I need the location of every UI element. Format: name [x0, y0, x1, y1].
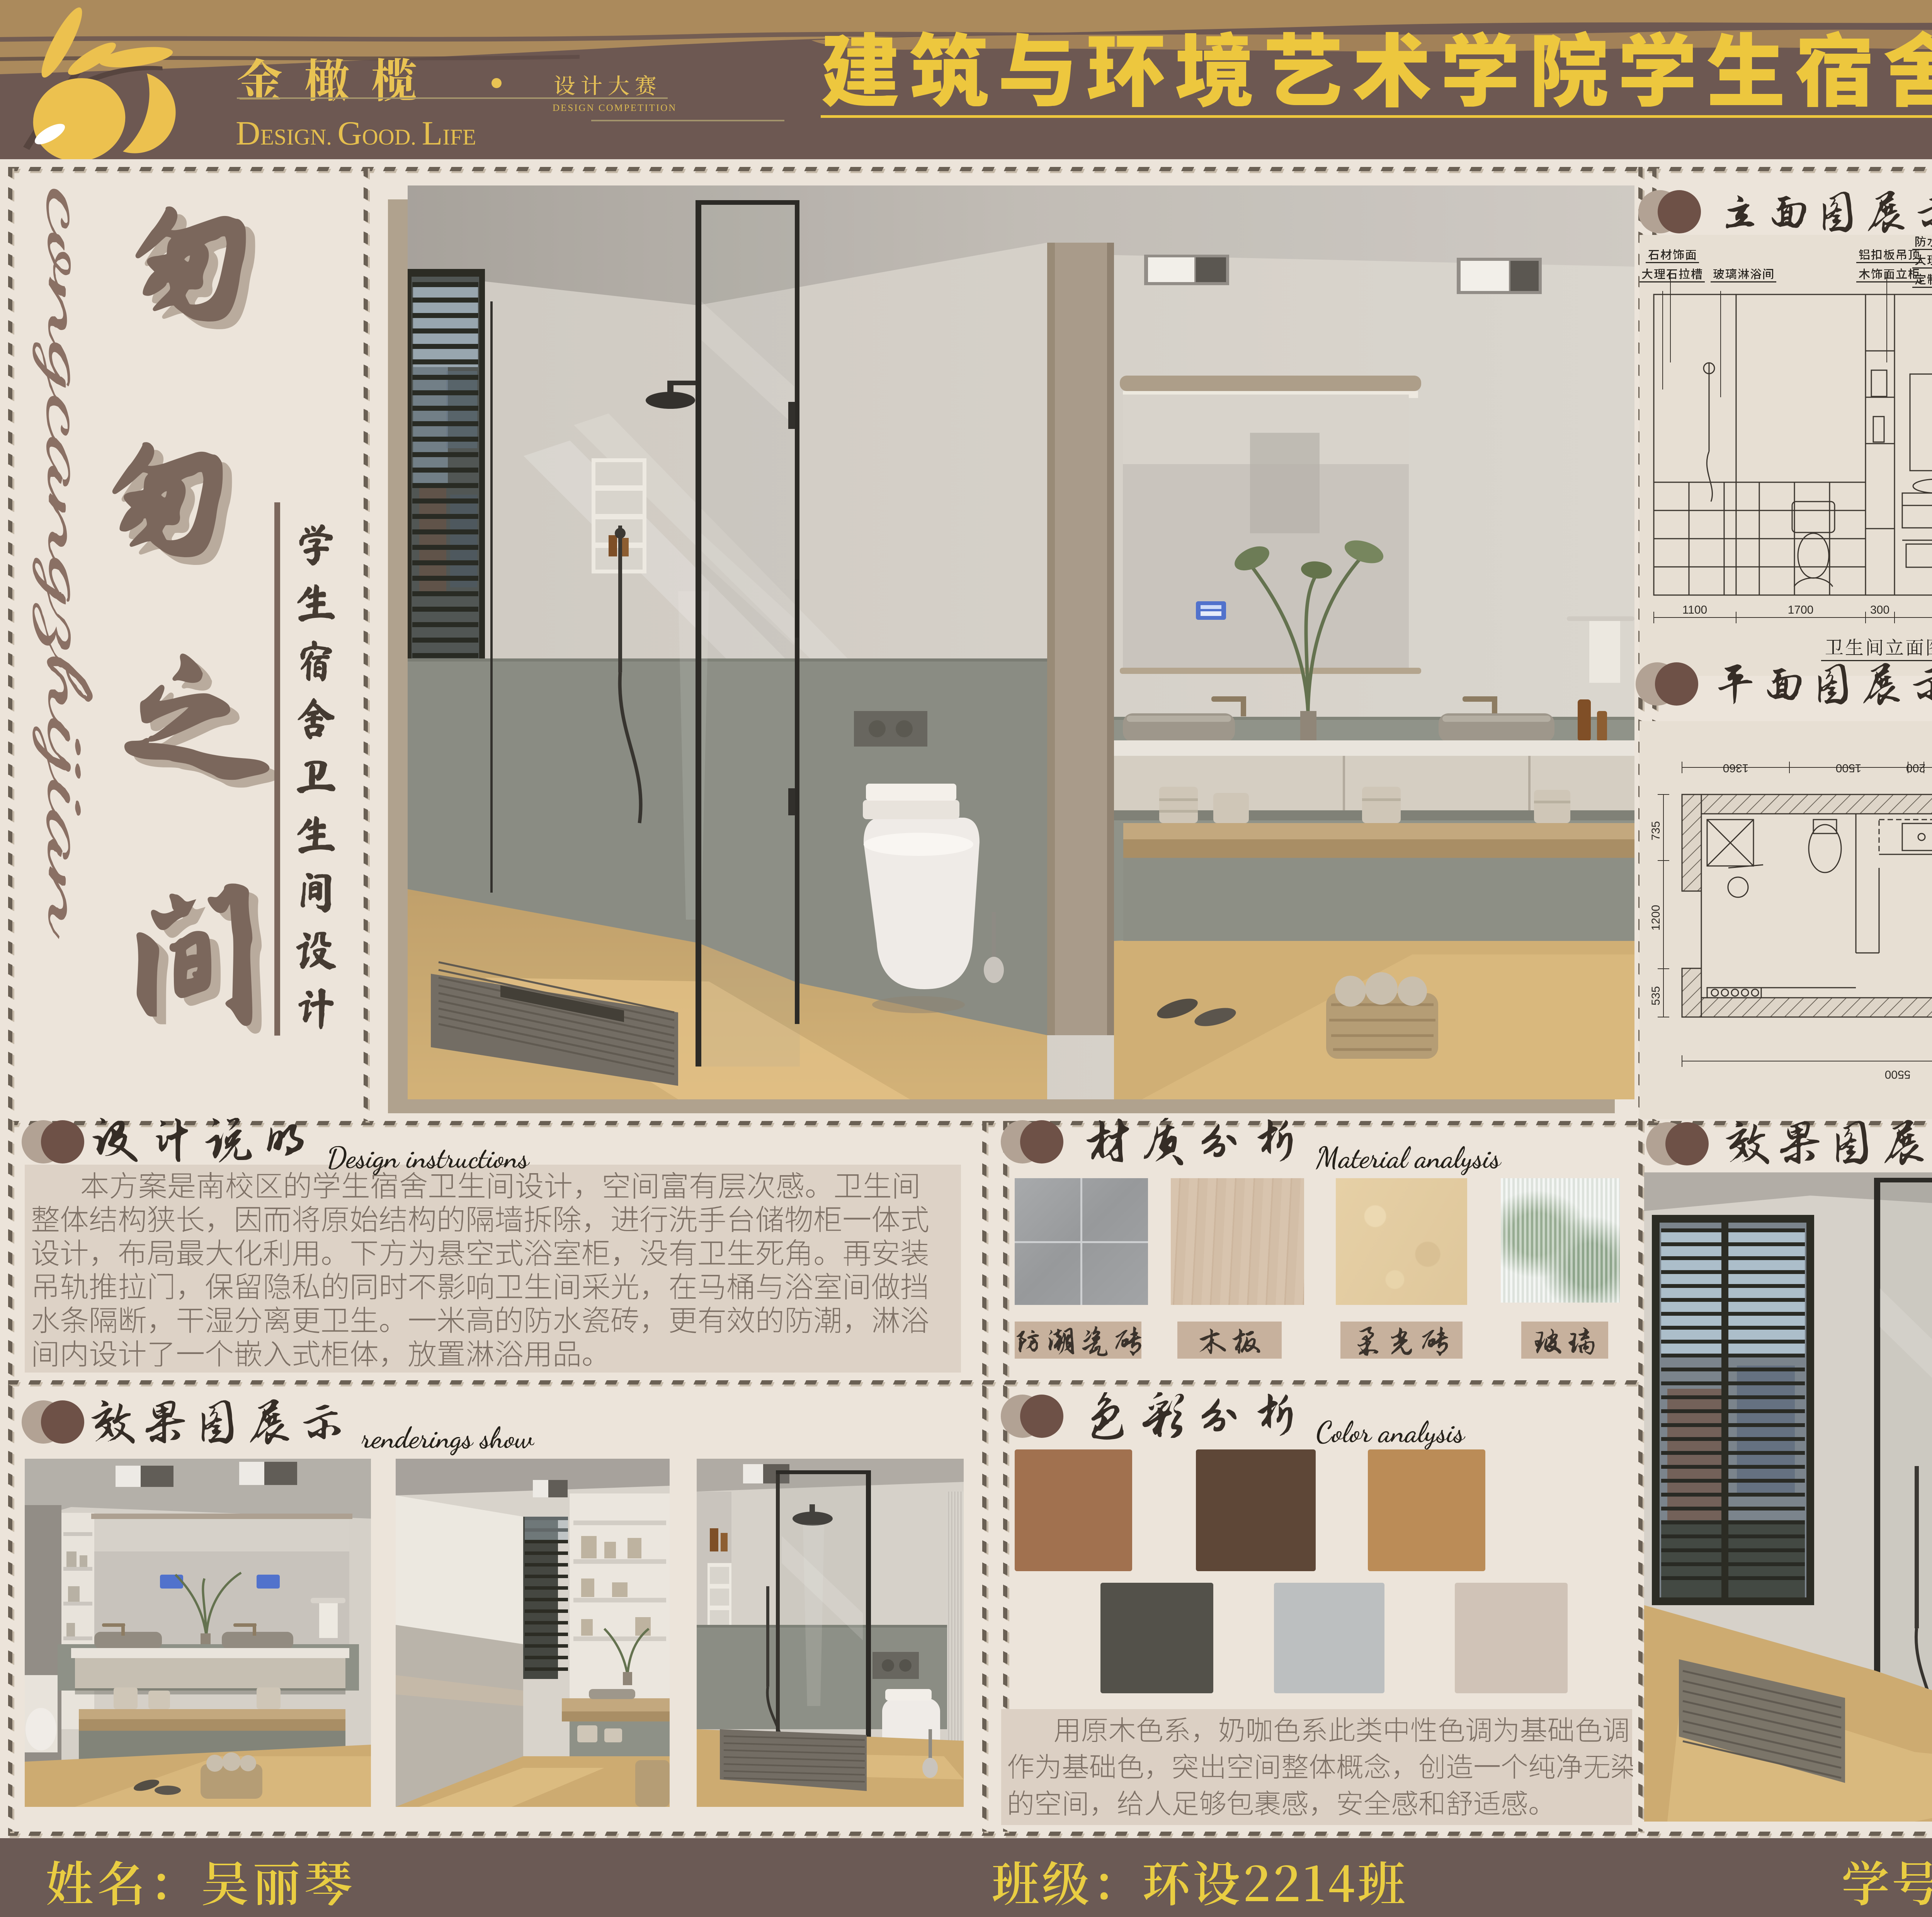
svg-text:1360: 1360: [1723, 762, 1749, 774]
svg-text:200: 200: [1906, 762, 1925, 774]
svg-text:1200: 1200: [1650, 905, 1662, 931]
svg-text:300: 300: [1870, 604, 1889, 616]
svg-text:1100: 1100: [1682, 604, 1708, 616]
svg-text:1700: 1700: [1788, 604, 1814, 616]
svg-text:1500: 1500: [1836, 762, 1862, 774]
svg-text:535: 535: [1650, 986, 1662, 1005]
svg-text:5500: 5500: [1885, 1068, 1911, 1081]
svg-text:735: 735: [1650, 821, 1662, 840]
